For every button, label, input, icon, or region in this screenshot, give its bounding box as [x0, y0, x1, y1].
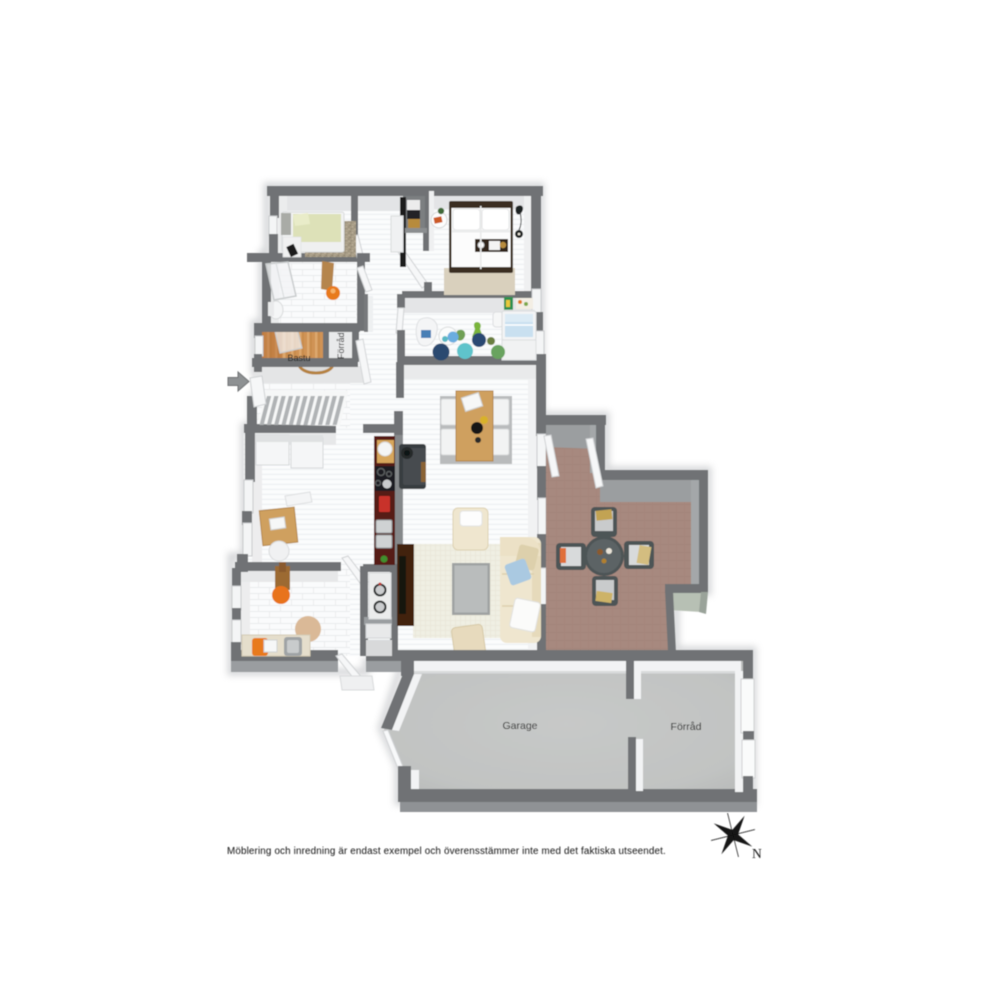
svg-text:Förråd: Förråd [671, 721, 702, 733]
svg-text:N: N [752, 846, 762, 861]
svg-text:Bastu: Bastu [287, 353, 310, 363]
svg-text:Möblering och inredning är end: Möblering och inredning är endast exempe… [227, 846, 666, 857]
svg-text:Garage: Garage [502, 720, 537, 732]
svg-text:Förråd: Förråd [336, 332, 346, 359]
